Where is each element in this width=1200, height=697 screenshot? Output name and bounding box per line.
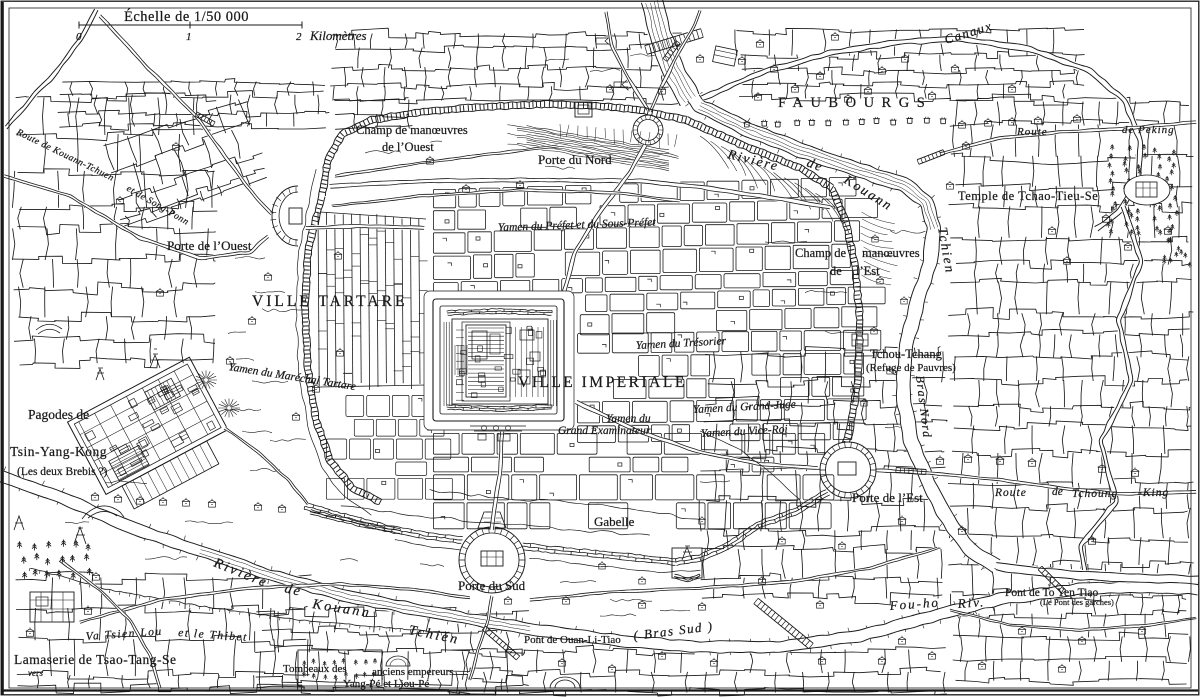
svg-text:Porte de l’Ouest: Porte de l’Ouest: [167, 238, 252, 253]
svg-text:Champ de manœuvres: Champ de manœuvres: [356, 123, 468, 137]
svg-text:Tsin-Yang-Kong: Tsin-Yang-Kong: [10, 444, 107, 459]
svg-text:Route: Route: [1016, 126, 1048, 138]
svg-text:Temple de Tchao-Tieu-Se: Temple de Tchao-Tieu-Se: [958, 189, 1098, 203]
svg-text:Échelle de 1/50 000: Échelle de 1/50 000: [124, 8, 249, 25]
svg-text:FAUBOURGS: FAUBOURGS: [778, 95, 932, 111]
svg-text:Porte du Sud: Porte du Sud: [458, 578, 526, 593]
svg-text:Gabelle: Gabelle: [594, 514, 635, 529]
svg-text:-King: -King: [1138, 487, 1169, 499]
svg-text:Tombeaux des: Tombeaux des: [283, 663, 347, 675]
svg-text:Tchou-Tchang: Tchou-Tchang: [870, 347, 943, 361]
svg-text:de l’Ouest: de l’Ouest: [382, 140, 434, 154]
svg-text:VILLE TARTARE: VILLE TARTARE: [252, 293, 407, 310]
svg-text:Champ de: Champ de: [795, 246, 846, 260]
svg-text:Pagodes de: Pagodes de: [28, 407, 89, 422]
svg-text:Grand Examinateur: Grand Examinateur: [558, 425, 651, 437]
svg-text:VILLE IMPERIALE: VILLE IMPERIALE: [518, 374, 687, 391]
svg-text:2: 2: [296, 31, 302, 43]
svg-text:l’Est: l’Est: [856, 264, 880, 278]
svg-text:Kilomètres: Kilomètres: [309, 28, 367, 43]
svg-text:0: 0: [76, 31, 82, 43]
svg-text:1: 1: [186, 31, 192, 43]
svg-text:Pont de Ouan-Li-Tiao: Pont de Ouan-Li-Tiao: [524, 634, 621, 646]
svg-text:de: de: [830, 264, 842, 278]
svg-text:(Les deux Brebis ?): (Les deux Brebis ?): [17, 466, 108, 478]
svg-text:(Refuge de Pauvres): (Refuge de Pauvres): [866, 362, 956, 374]
svg-text:Porte du Nord: Porte du Nord: [538, 152, 612, 167]
svg-text:de Peking: de Peking: [1122, 124, 1175, 136]
svg-text:Yamen du: Yamen du: [606, 413, 651, 425]
svg-text:anciens empereurs: anciens empereurs: [372, 666, 454, 678]
svg-text:(Le Pont des garches): (Le Pont des garches): [1040, 597, 1114, 607]
svg-text:de: de: [1052, 486, 1063, 498]
svg-text:vers: vers: [28, 668, 43, 678]
svg-text:Porte de l’Est: Porte de l’Est: [852, 490, 923, 505]
svg-text:Tchoung: Tchoung: [1072, 488, 1118, 500]
svg-text:Riv.: Riv.: [956, 594, 986, 611]
svg-text:Route: Route: [994, 487, 1027, 499]
svg-text:Lamaserie de Tsao-Tang-Se: Lamaserie de Tsao-Tang-Se: [14, 652, 177, 667]
svg-text:manœuvres: manœuvres: [862, 246, 920, 260]
